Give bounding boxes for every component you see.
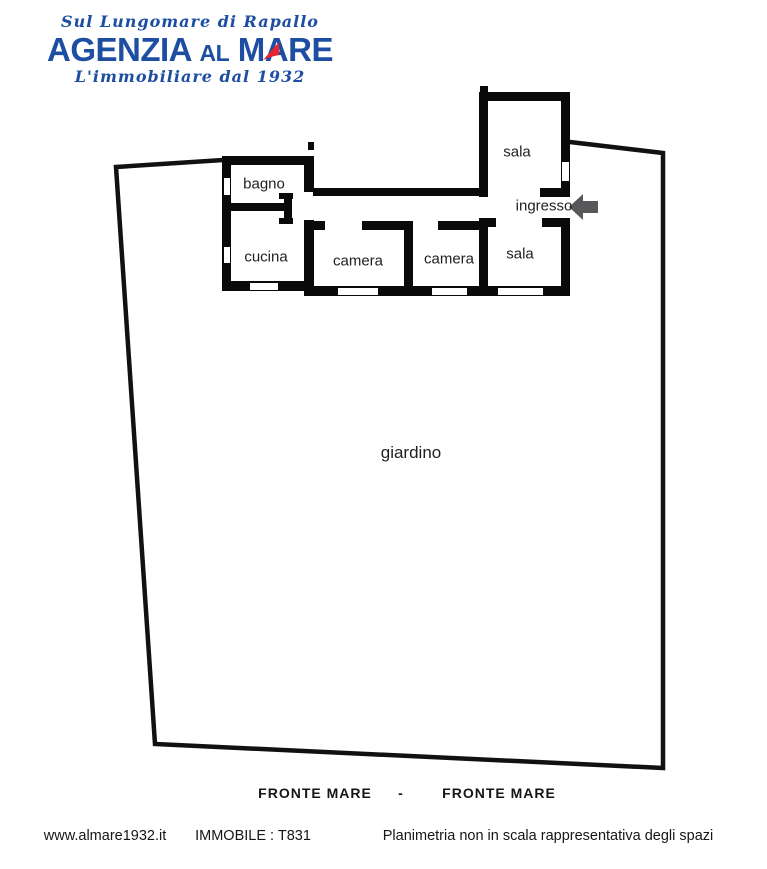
- door-jamb: [279, 193, 293, 199]
- wall-segment: [313, 188, 488, 196]
- fronte-mare-separator: -: [398, 785, 404, 801]
- wall-segment: [540, 188, 570, 197]
- footer-website-text: www.almare1932.it: [44, 828, 167, 844]
- entrance-arrow-icon: [569, 194, 598, 220]
- room-label-sala-top: sala: [503, 144, 531, 161]
- wall-segment: [480, 86, 488, 93]
- footer-property-ref: IMMOBILE : T831: [195, 828, 311, 844]
- room-label-cucina: cucina: [244, 249, 287, 266]
- wall-segment: [304, 221, 325, 230]
- wall-segment: [304, 156, 314, 192]
- wall-segment: [404, 221, 413, 296]
- wall-segment: [308, 142, 314, 150]
- room-label-sala-bottom: sala: [506, 246, 534, 263]
- wall-segment: [561, 218, 570, 296]
- garden-label: giardino: [381, 443, 442, 463]
- fronte-mare-right-label: FRONTE MARE: [442, 785, 556, 801]
- window-opening: [498, 288, 543, 295]
- window-opening: [224, 178, 230, 195]
- footer-disclaimer: Planimetria non in scala rappresentativa…: [383, 828, 713, 844]
- window-opening: [562, 162, 569, 181]
- room-label-bagno: bagno: [243, 176, 285, 193]
- room-label-camera-left: camera: [333, 253, 383, 270]
- wall-segment: [479, 92, 488, 197]
- window-opening: [224, 247, 230, 263]
- wall-segment: [479, 218, 488, 296]
- window-opening: [338, 288, 378, 295]
- wall-segment: [479, 218, 496, 227]
- room-label-ingresso: ingresso: [516, 198, 573, 215]
- floorplan-drawing: [0, 0, 767, 869]
- room-label-camera-right: camera: [424, 251, 474, 268]
- fronte-mare-left-label: FRONTE MARE: [258, 785, 372, 801]
- door-jamb: [279, 218, 293, 224]
- window-opening: [432, 288, 467, 295]
- wall-segment: [479, 92, 570, 101]
- window-opening: [250, 283, 278, 290]
- wall-segment: [304, 220, 314, 296]
- wall-segment: [222, 203, 284, 211]
- wall-segment: [222, 156, 314, 165]
- wall-segment: [222, 156, 231, 291]
